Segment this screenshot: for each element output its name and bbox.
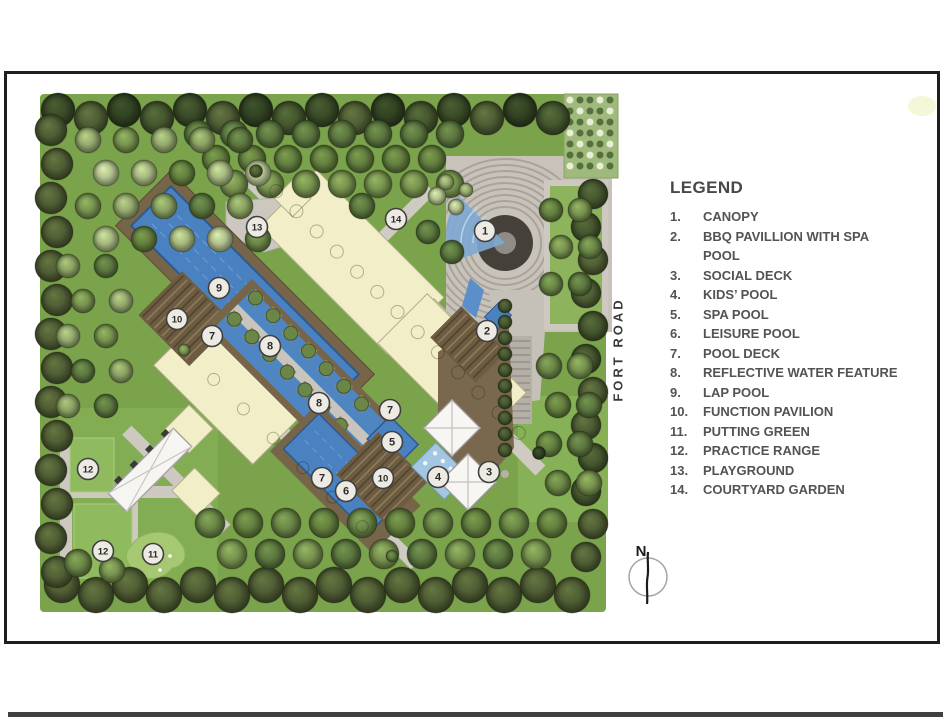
tree: [292, 120, 320, 148]
tree: [539, 198, 563, 222]
legend-item-number: 2.: [670, 227, 703, 266]
tree: [71, 359, 95, 383]
legend-item-label: LAP POOL: [703, 383, 908, 403]
tree: [498, 395, 512, 409]
legend-item-number: 13.: [670, 461, 703, 481]
tree: [189, 127, 215, 153]
tree: [93, 226, 119, 252]
tree: [533, 447, 546, 460]
road-label: FORT ROAD: [611, 285, 626, 415]
tree: [440, 240, 464, 264]
legend-item: 13.PLAYGROUND: [670, 461, 912, 481]
legend-item: 5.SPA POOL: [670, 305, 912, 325]
tree: [545, 470, 571, 496]
tree: [109, 289, 133, 313]
legend-item: 3.SOCIAL DECK: [670, 266, 912, 286]
tree: [386, 550, 398, 562]
tree: [274, 145, 302, 173]
tree: [328, 170, 356, 198]
tree: [576, 470, 602, 496]
tree: [41, 148, 73, 180]
tree: [445, 539, 475, 569]
legend-item-number: 3.: [670, 266, 703, 286]
tree: [498, 331, 512, 345]
tree: [499, 508, 529, 538]
plan-marker-number: 10: [378, 474, 389, 485]
plan-marker: 4: [428, 467, 449, 488]
legend-item-number: 5.: [670, 305, 703, 325]
plan-marker: 8: [309, 393, 330, 414]
tree: [35, 454, 67, 486]
tree: [364, 170, 392, 198]
legend-item: 9.LAP POOL: [670, 383, 912, 403]
tree: [328, 120, 356, 148]
tree: [545, 392, 571, 418]
tree: [498, 427, 512, 441]
legend-item-number: 12.: [670, 441, 703, 461]
plan-marker-number: 9: [216, 283, 222, 295]
tree: [151, 127, 177, 153]
legend-item-label: BBQ PAVILLION WITH SPA POOL: [703, 227, 908, 266]
tree: [520, 567, 556, 603]
plan-marker: 9: [209, 278, 230, 299]
tree: [498, 379, 512, 393]
tree: [75, 127, 101, 153]
tree: [250, 165, 263, 178]
legend-item-label: PLAYGROUND: [703, 461, 908, 481]
tree: [498, 363, 512, 377]
tree: [178, 344, 190, 356]
tree: [227, 127, 253, 153]
tree: [346, 145, 374, 173]
tree: [459, 183, 473, 197]
deck-dot: [501, 470, 509, 478]
legend-item-number: 9.: [670, 383, 703, 403]
tree: [94, 394, 118, 418]
tree: [400, 170, 428, 198]
tree: [452, 567, 488, 603]
legend-item-label: PRACTICE RANGE: [703, 441, 908, 461]
plan-marker: 5: [382, 432, 403, 453]
tree: [56, 324, 80, 348]
plan-marker: 14: [386, 209, 407, 230]
plan-marker-number: 14: [391, 215, 402, 226]
tree: [169, 160, 195, 186]
plan-marker: 10: [167, 309, 188, 330]
tree: [56, 394, 80, 418]
tree: [271, 508, 301, 538]
tree: [41, 216, 73, 248]
tree: [35, 114, 67, 146]
tree: [576, 392, 602, 418]
tree: [536, 101, 570, 135]
tree: [293, 539, 323, 569]
plan-marker: 7: [202, 326, 223, 347]
legend-item-label: FUNCTION PAVILION: [703, 402, 908, 422]
legend-item-label: SPA POOL: [703, 305, 908, 325]
tree: [256, 120, 284, 148]
tree: [113, 193, 139, 219]
tree: [64, 549, 92, 577]
tree: [189, 193, 215, 219]
plan-marker: 10: [373, 468, 394, 489]
tree: [331, 539, 361, 569]
tree: [347, 508, 377, 538]
tree: [207, 160, 233, 186]
tree: [498, 347, 512, 361]
legend-item-number: 8.: [670, 363, 703, 383]
plan-marker-number: 7: [319, 473, 325, 485]
tree: [486, 577, 522, 613]
tree: [382, 145, 410, 173]
tree: [567, 353, 593, 379]
tree: [41, 420, 73, 452]
tree: [109, 359, 133, 383]
tree: [416, 220, 440, 244]
tree: [180, 567, 216, 603]
tree: [384, 567, 420, 603]
tree: [498, 411, 512, 425]
tree: [233, 508, 263, 538]
tree: [94, 324, 118, 348]
tree: [94, 254, 118, 278]
plan-marker: 11: [143, 544, 164, 565]
tree: [418, 577, 454, 613]
tree: [41, 352, 73, 384]
tree: [578, 509, 608, 539]
tree: [316, 567, 352, 603]
plan-marker-number: 6: [343, 486, 349, 498]
tree: [539, 272, 563, 296]
plan-marker-number: 5: [389, 437, 395, 449]
tree: [498, 315, 512, 329]
tree: [498, 299, 512, 313]
plan-marker: 2: [477, 321, 498, 342]
plan-marker-number: 1: [482, 226, 488, 238]
plan-marker-number: 7: [387, 405, 393, 417]
plan-marker-number: 8: [316, 398, 322, 410]
tree: [350, 577, 386, 613]
legend-item: 1.CANOPY: [670, 207, 912, 227]
tree: [436, 120, 464, 148]
tree: [536, 353, 562, 379]
tree: [549, 235, 573, 259]
plan-marker: 7: [312, 468, 333, 489]
tree: [282, 577, 318, 613]
plan-marker-number: 3: [486, 467, 492, 479]
tree: [537, 508, 567, 538]
tree: [349, 193, 375, 219]
tree: [309, 508, 339, 538]
legend-item-number: 14.: [670, 480, 703, 500]
tree: [41, 284, 73, 316]
tree: [400, 120, 428, 148]
tree: [151, 193, 177, 219]
plan-marker-number: 8: [267, 341, 273, 353]
tree: [364, 120, 392, 148]
legend-list: 1.CANOPY2.BBQ PAVILLION WITH SPA POOL3.S…: [670, 207, 912, 500]
tree: [169, 226, 195, 252]
plan-marker-number: 12: [98, 547, 109, 558]
tree: [75, 193, 101, 219]
legend: LEGEND 1.CANOPY2.BBQ PAVILLION WITH SPA …: [670, 178, 912, 500]
tree: [578, 311, 608, 341]
tree: [571, 542, 601, 572]
tree: [503, 93, 537, 127]
tree: [131, 226, 157, 252]
legend-item-label: SOCIAL DECK: [703, 266, 908, 286]
tree: [255, 539, 285, 569]
legend-item-number: 11.: [670, 422, 703, 442]
tree: [107, 93, 141, 127]
tree: [385, 508, 415, 538]
tree: [113, 127, 139, 153]
plan-marker-number: 10: [172, 315, 183, 326]
corner-artifact: [908, 96, 936, 116]
plan-marker-number: 12: [83, 465, 94, 476]
plan-marker: 12: [93, 541, 114, 562]
bottom-edge: [8, 712, 943, 717]
plan-marker-number: 4: [435, 472, 442, 484]
legend-item-number: 1.: [670, 207, 703, 227]
tree: [93, 160, 119, 186]
legend-item: 8.REFLECTIVE WATER FEATURE: [670, 363, 912, 383]
north-label: N: [636, 543, 647, 560]
tree: [56, 254, 80, 278]
tree: [521, 539, 551, 569]
legend-title: LEGEND: [670, 178, 912, 198]
tree: [438, 174, 454, 190]
tree: [568, 198, 592, 222]
legend-item-label: CANOPY: [703, 207, 908, 227]
tree: [195, 508, 225, 538]
legend-item-label: PUTTING GREEN: [703, 422, 908, 442]
tree: [423, 508, 453, 538]
tree: [292, 170, 320, 198]
plan-marker: 3: [479, 462, 500, 483]
legend-item: 4.KIDS’ POOL: [670, 285, 912, 305]
plan-marker: 7: [380, 400, 401, 421]
tree: [448, 199, 464, 215]
tree: [418, 145, 446, 173]
tree: [217, 539, 247, 569]
plan-marker-number: 7: [209, 331, 215, 343]
tree: [567, 431, 593, 457]
tree: [470, 101, 504, 135]
tree: [461, 508, 491, 538]
tree: [498, 443, 512, 457]
legend-item-label: KIDS’ POOL: [703, 285, 908, 305]
legend-item: 7.POOL DECK: [670, 344, 912, 364]
legend-item-label: LEISURE POOL: [703, 324, 908, 344]
tree: [214, 577, 250, 613]
tree: [554, 577, 590, 613]
plan-marker-number: 2: [484, 326, 490, 338]
tree: [131, 160, 157, 186]
plan-marker: 12: [78, 459, 99, 480]
putting-hole: [158, 568, 162, 572]
tree: [407, 539, 437, 569]
legend-item-label: REFLECTIVE WATER FEATURE: [703, 363, 908, 383]
tree: [207, 226, 233, 252]
plan-marker: 13: [247, 217, 268, 238]
legend-item-number: 7.: [670, 344, 703, 364]
tree: [35, 522, 67, 554]
plan-marker: 6: [336, 481, 357, 502]
plan-marker: 8: [260, 336, 281, 357]
tree: [248, 567, 284, 603]
tree: [310, 145, 338, 173]
legend-item: 12.PRACTICE RANGE: [670, 441, 912, 461]
legend-item-label: COURTYARD GARDEN: [703, 480, 908, 500]
legend-item: 6.LEISURE POOL: [670, 324, 912, 344]
plan-marker-number: 13: [252, 223, 263, 234]
legend-item-number: 6.: [670, 324, 703, 344]
site-plan-page: 12345677788910101112121314 N FORT ROAD L…: [0, 0, 943, 717]
tree: [227, 193, 253, 219]
legend-item-number: 10.: [670, 402, 703, 422]
tree: [146, 577, 182, 613]
legend-item-number: 4.: [670, 285, 703, 305]
tree: [35, 182, 67, 214]
plan-marker: 1: [475, 221, 496, 242]
putting-hole: [168, 554, 172, 558]
tree: [483, 539, 513, 569]
tree: [41, 488, 73, 520]
legend-item-label: POOL DECK: [703, 344, 908, 364]
plan-marker-number: 11: [148, 550, 159, 561]
tree: [568, 272, 592, 296]
legend-item: 11.PUTTING GREEN: [670, 422, 912, 442]
legend-item: 14.COURTYARD GARDEN: [670, 480, 912, 500]
tree: [578, 235, 602, 259]
legend-item: 2.BBQ PAVILLION WITH SPA POOL: [670, 227, 912, 266]
legend-item: 10.FUNCTION PAVILION: [670, 402, 912, 422]
tree: [71, 289, 95, 313]
